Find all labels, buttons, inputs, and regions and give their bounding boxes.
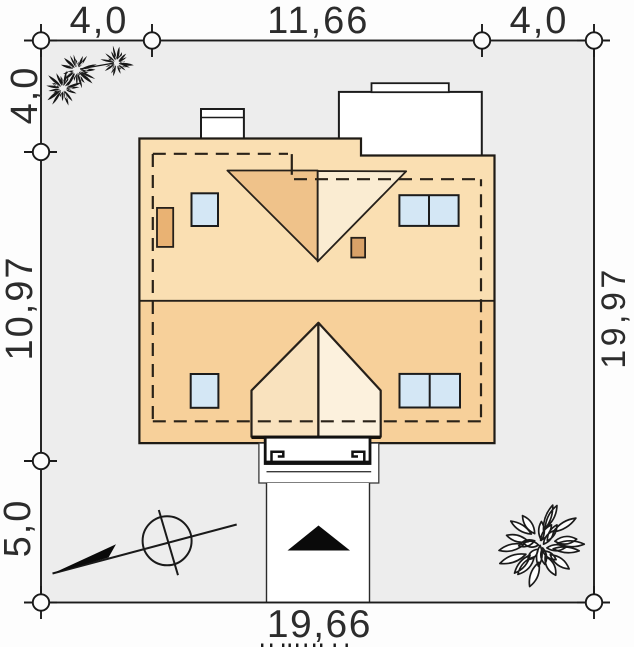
svg-text:4,0: 4,0 xyxy=(4,66,46,125)
svg-text:19,66: 19,66 xyxy=(267,603,372,646)
svg-text:5,0: 5,0 xyxy=(0,499,39,558)
svg-text:19,97: 19,97 xyxy=(595,266,633,369)
svg-text:4,0: 4,0 xyxy=(70,0,129,42)
svg-text:10,97: 10,97 xyxy=(0,255,41,360)
svg-text:4,0: 4,0 xyxy=(510,0,569,42)
svg-text:11,66: 11,66 xyxy=(267,0,369,42)
